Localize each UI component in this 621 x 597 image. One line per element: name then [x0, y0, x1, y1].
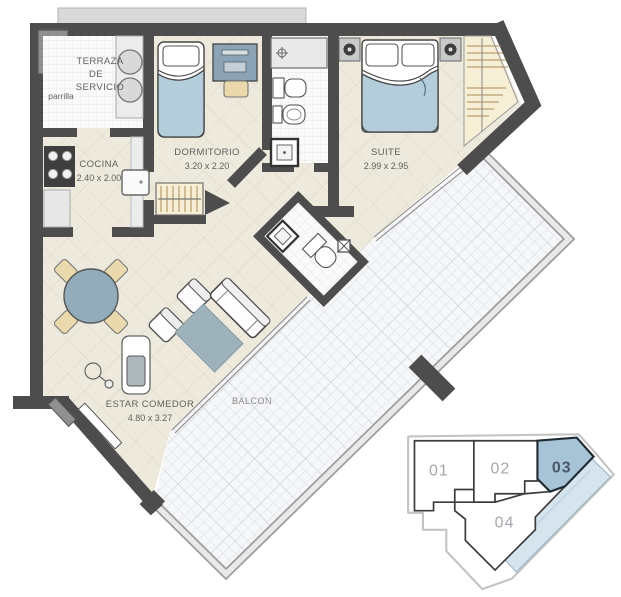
dormitorio-dims: 3.20 x 2.20: [185, 161, 230, 171]
parrilla-label: parrilla: [48, 91, 74, 101]
tv: [127, 356, 145, 386]
pillow-right: [402, 44, 434, 66]
tv-unit: [122, 336, 150, 394]
locator-num-01[interactable]: 01: [429, 463, 449, 480]
floor-plan-canvas: TERRAZA DE SERVICIO parrilla COCINA 2.40…: [0, 0, 621, 597]
wardrobe: [156, 183, 203, 215]
bathroom1-sink: [271, 139, 298, 166]
estar-dims: 4.80 x 3.27: [128, 413, 173, 423]
suite-label: SUITE: [371, 147, 401, 158]
upper-neighbour-slab: [58, 8, 306, 25]
shower-drain-symbol: [338, 240, 350, 252]
terraza-label-3: SERVICIO: [76, 82, 124, 93]
cocina-label: COCINA: [79, 159, 119, 170]
terraza-counter: [116, 36, 143, 118]
bidet: [273, 105, 305, 124]
pillow: [163, 46, 199, 66]
bathroom-suite: [271, 36, 328, 166]
dormitorio-label: DORMITORIO: [174, 147, 240, 158]
kitchen-counter: [44, 190, 70, 227]
blanket: [158, 70, 204, 137]
terraza-label-2: DE: [89, 69, 103, 80]
nightstand-left: [339, 38, 360, 61]
kitchen-stove: [44, 146, 75, 187]
locator-num-03[interactable]: 03: [552, 460, 572, 477]
single-bed: [158, 42, 204, 137]
double-bed: [362, 40, 438, 132]
locator-num-02[interactable]: 02: [490, 461, 510, 478]
locator-num-04[interactable]: 04: [495, 515, 515, 532]
balcon-label: BALCON: [232, 396, 272, 406]
nightstand-right: [440, 38, 461, 61]
kitchen-sink: [122, 170, 149, 195]
desk-chair: [224, 81, 248, 97]
estar-label: ESTAR COMEDOR: [106, 399, 194, 410]
pillow-left: [366, 44, 398, 66]
suite-dims: 2.99 x 2.95: [364, 161, 409, 171]
cocina-dims: 2.40 x 2.00: [77, 173, 122, 183]
toilet: [273, 78, 306, 98]
terraza-label-1: TERRAZA: [76, 56, 123, 67]
dining-table: [64, 269, 118, 323]
